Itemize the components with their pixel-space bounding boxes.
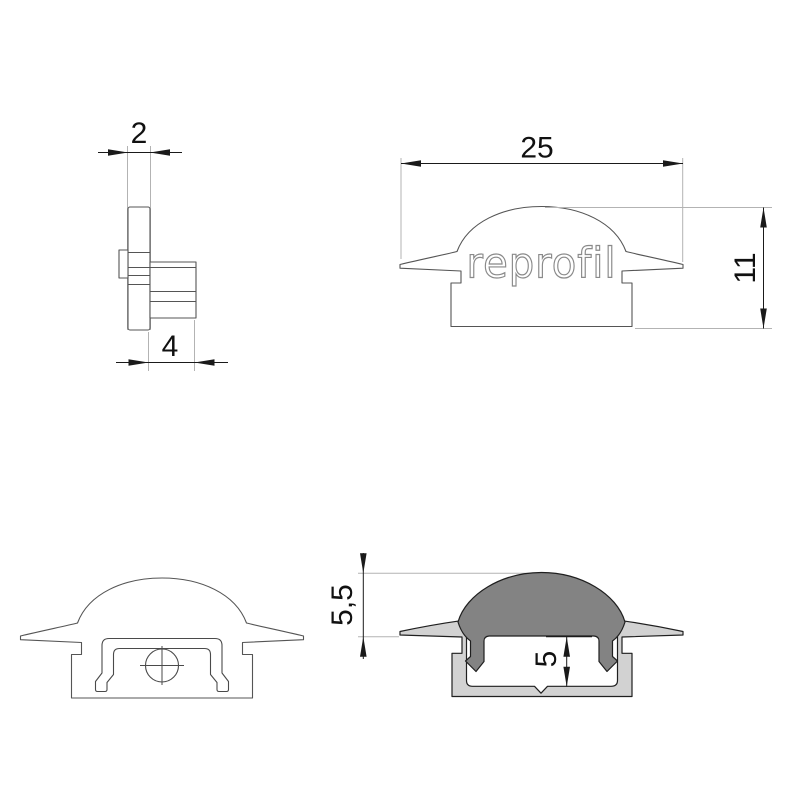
- endcap-flange-side: [128, 207, 150, 330]
- dim-arrow: [360, 553, 367, 573]
- dim-arrow: [150, 149, 170, 156]
- brand-logo-text: reprofil: [467, 239, 617, 288]
- dim-arrow: [129, 359, 149, 366]
- section-view: 5,5 5: [326, 553, 683, 697]
- dim-label-cover-height: 5,5: [326, 584, 359, 626]
- endcap-plug-side: [150, 262, 196, 318]
- endcap-tab-side: [119, 250, 128, 278]
- dim-label-flange-thickness: 2: [131, 117, 148, 150]
- front-view: 25 reprofil 11: [400, 132, 772, 329]
- dim-arrow: [401, 160, 421, 167]
- technical-drawing-canvas: 2 4 25 reprofil 11: [0, 0, 800, 800]
- dim-arrow: [760, 208, 767, 228]
- dim-arrow: [360, 637, 367, 657]
- dim-arrow: [760, 309, 767, 329]
- rear-view: [21, 578, 304, 698]
- dim-arrow: [663, 160, 683, 167]
- side-view: 2 4: [98, 117, 228, 371]
- dim-arrow: [195, 359, 215, 366]
- dim-label-overall-height: 11: [729, 252, 762, 283]
- dim-label-inner-depth: 5: [530, 651, 563, 668]
- technical-drawing-page: 2 4 25 reprofil 11: [0, 0, 800, 800]
- dim-label-plug-depth: 4: [162, 330, 179, 363]
- dim-arrow: [108, 149, 128, 156]
- dim-label-overall-width: 25: [520, 132, 553, 165]
